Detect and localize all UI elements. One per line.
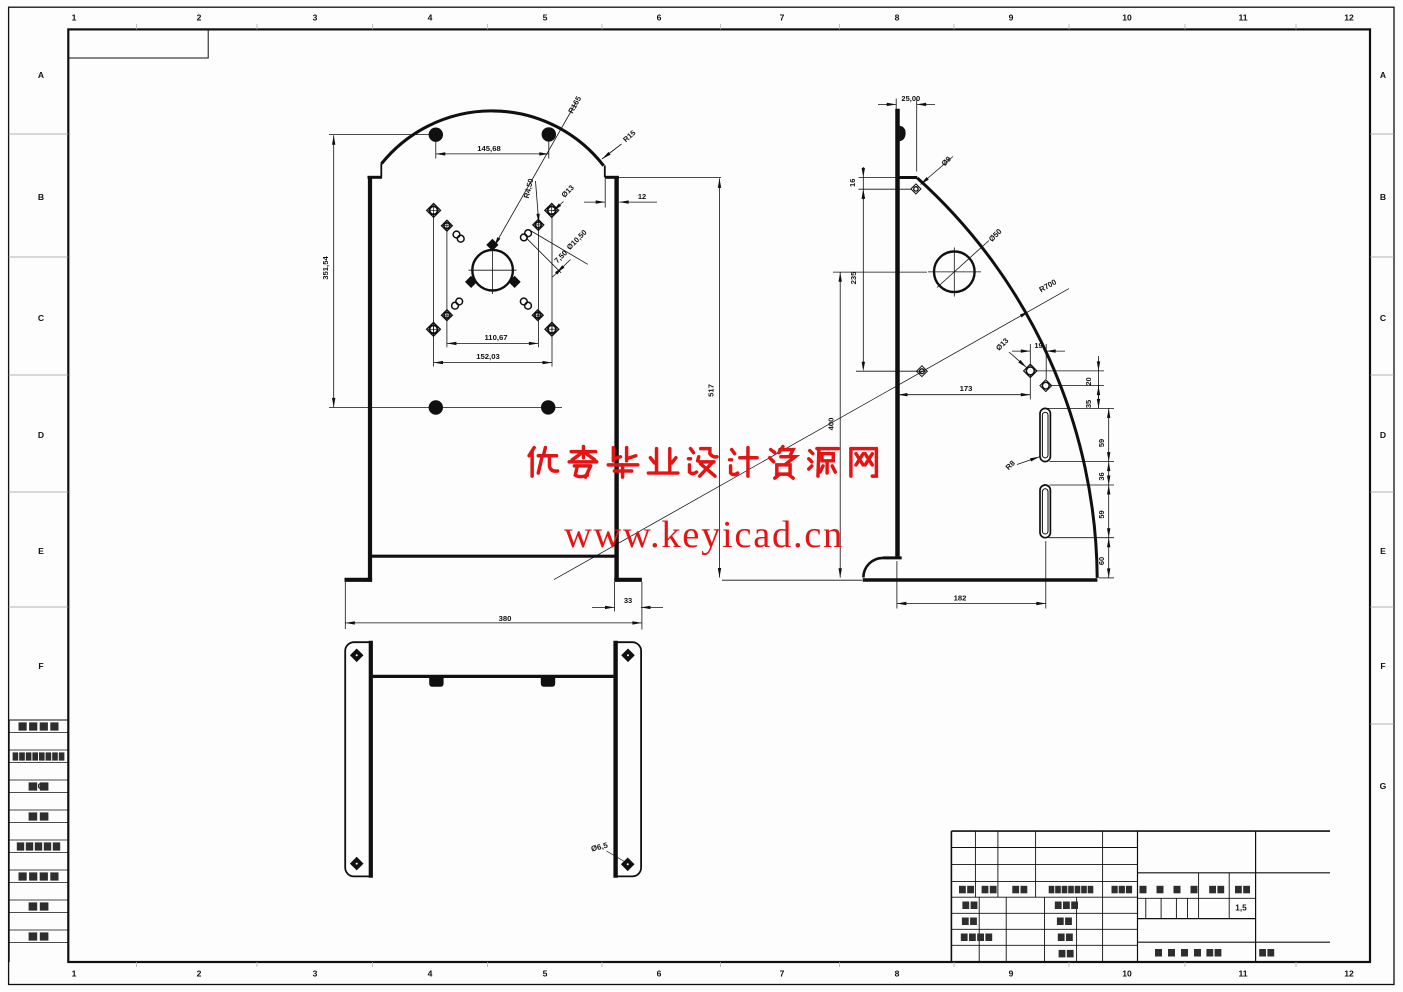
svg-text:25,00: 25,00 bbox=[901, 94, 920, 103]
svg-text:33: 33 bbox=[624, 596, 632, 605]
svg-text:59: 59 bbox=[1097, 439, 1106, 447]
svg-text:59: 59 bbox=[1097, 510, 1106, 518]
svg-text:11: 11 bbox=[1238, 969, 1247, 979]
svg-text:1: 1 bbox=[72, 969, 77, 979]
svg-text:www.keyicad.cn: www.keyicad.cn bbox=[564, 514, 844, 556]
svg-text:517: 517 bbox=[707, 384, 716, 397]
svg-text:145,68: 145,68 bbox=[477, 144, 501, 153]
svg-text:8: 8 bbox=[895, 13, 900, 23]
svg-text:35: 35 bbox=[1084, 400, 1093, 408]
svg-text:7: 7 bbox=[780, 13, 785, 23]
svg-text:B: B bbox=[38, 192, 44, 202]
svg-text:235: 235 bbox=[849, 271, 858, 285]
svg-text:19: 19 bbox=[1034, 341, 1042, 350]
svg-text:F: F bbox=[1380, 661, 1385, 671]
svg-text:12: 12 bbox=[1344, 13, 1354, 23]
svg-text:8: 8 bbox=[895, 969, 900, 979]
svg-text:6: 6 bbox=[657, 969, 662, 979]
svg-text:C: C bbox=[38, 313, 44, 323]
svg-text:F: F bbox=[38, 661, 43, 671]
svg-text:20: 20 bbox=[1084, 377, 1093, 385]
svg-text:10: 10 bbox=[1122, 969, 1132, 979]
svg-text:A: A bbox=[1380, 70, 1386, 80]
svg-text:4: 4 bbox=[428, 969, 433, 979]
svg-text:380: 380 bbox=[499, 614, 512, 623]
svg-text:D: D bbox=[1380, 430, 1386, 440]
svg-text:2: 2 bbox=[197, 13, 202, 23]
svg-text:110,67: 110,67 bbox=[484, 333, 507, 342]
svg-text:D: D bbox=[38, 430, 44, 440]
svg-text:1: 1 bbox=[72, 13, 77, 23]
svg-text:7: 7 bbox=[780, 969, 785, 979]
svg-text:182: 182 bbox=[954, 593, 967, 602]
svg-text:E: E bbox=[1380, 546, 1386, 556]
svg-text:9: 9 bbox=[1009, 13, 1014, 23]
svg-text:36: 36 bbox=[1097, 472, 1106, 480]
svg-text:173: 173 bbox=[960, 384, 973, 393]
svg-text:A: A bbox=[38, 70, 44, 80]
svg-text:11: 11 bbox=[1238, 13, 1247, 23]
svg-text:5: 5 bbox=[543, 13, 548, 23]
svg-text:6: 6 bbox=[657, 13, 662, 23]
svg-text:1,5: 1,5 bbox=[1235, 904, 1247, 913]
svg-text:3: 3 bbox=[313, 969, 318, 979]
svg-text:G: G bbox=[1380, 781, 1387, 791]
svg-text:12: 12 bbox=[1344, 969, 1354, 979]
svg-text:C: C bbox=[1380, 313, 1386, 323]
svg-text:60: 60 bbox=[1097, 557, 1106, 565]
svg-text:152,03: 152,03 bbox=[476, 352, 500, 361]
svg-text:9: 9 bbox=[1009, 969, 1014, 979]
svg-text:16: 16 bbox=[848, 179, 857, 187]
svg-text:5: 5 bbox=[543, 969, 548, 979]
svg-text:10: 10 bbox=[1122, 13, 1132, 23]
svg-text:2: 2 bbox=[197, 969, 202, 979]
svg-text:351,54: 351,54 bbox=[321, 256, 330, 280]
svg-text:4: 4 bbox=[428, 13, 433, 23]
svg-text:12: 12 bbox=[638, 192, 646, 201]
svg-text:B: B bbox=[1380, 192, 1386, 202]
svg-text:400: 400 bbox=[827, 418, 836, 431]
svg-text:E: E bbox=[38, 546, 44, 556]
svg-text:3: 3 bbox=[313, 13, 318, 23]
